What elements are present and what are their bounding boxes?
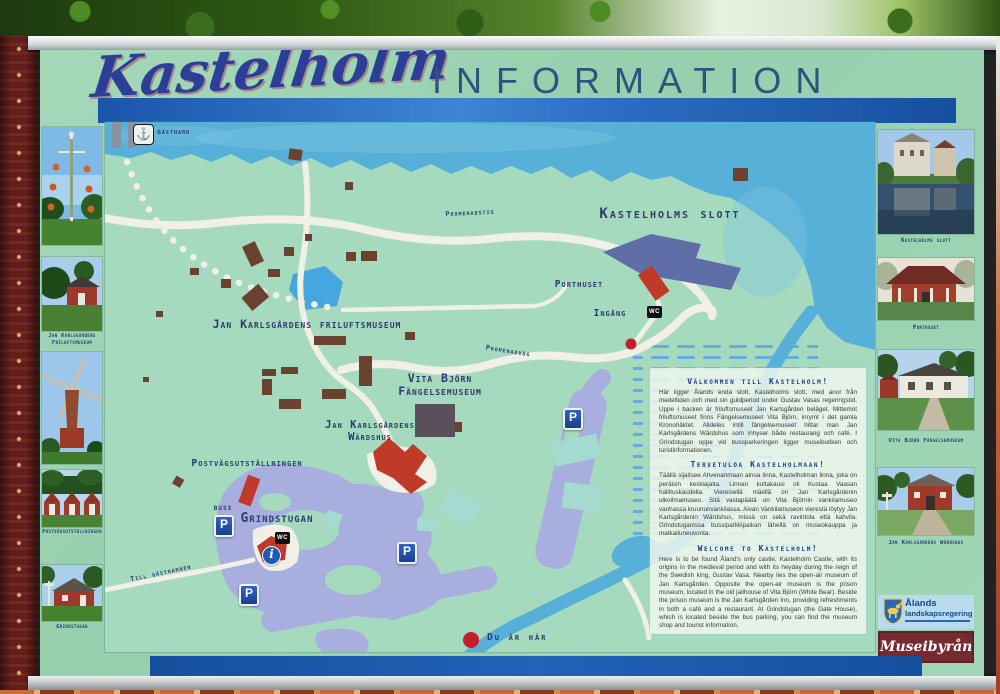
sign-frame-bottom xyxy=(28,676,996,690)
you-are-here-dot xyxy=(463,632,479,648)
logo-underline xyxy=(905,620,970,622)
caption-friluftsmuseum: Jan Karlsgårdens Friluftsmuseum xyxy=(42,333,102,347)
site-map: ⚓ Gästhamn Promenadstig Kastelholms slot… xyxy=(105,122,875,652)
label-kastelholms-slott: Kastelholms slott xyxy=(545,207,795,222)
caption-wardshus: Jan Karlsgårdens Wärdshus xyxy=(878,540,974,547)
heading-finnish: Tervetuloa Kastelholmaan! xyxy=(659,460,857,469)
aland-coat-of-arms-icon xyxy=(881,597,905,627)
label-porthuset: Porthuset xyxy=(533,280,625,290)
heading-swedish: Välkommen till Kastelholm! xyxy=(659,377,857,386)
background-right xyxy=(996,36,1000,694)
caption-grindstugan: Grindstugan xyxy=(42,624,102,631)
wc-badge-porthuset: WC xyxy=(647,306,662,318)
label-postvagsutstallningen: Postvägsutställningen xyxy=(163,458,331,469)
alands-landskapsregering-logo: Ålands landskapsregering xyxy=(878,595,974,629)
entrance-dot xyxy=(626,339,637,350)
photo-windmill xyxy=(42,352,102,464)
label-gasthamn: Gästhamn xyxy=(157,129,190,136)
caption-vita-bjorn: Vita Björn Fängelsemuseum xyxy=(878,438,974,445)
logo-text-landskapsregering: landskapsregering xyxy=(905,609,973,618)
paragraph-swedish: Här ligger Ålands enda slott, Kastelholm… xyxy=(659,389,857,455)
logo-text-museibyran: Museibyrån xyxy=(880,639,972,655)
label-wardshus-line2: Wärdshus xyxy=(308,432,432,444)
caption-porthuset: Porthuset xyxy=(878,325,974,333)
label-friluftsmuseum: Jan Karlsgårdens friluftsmuseum xyxy=(185,318,429,331)
paragraph-english: Here is to be found Åland's only castle,… xyxy=(659,556,857,631)
label-vita-bjorn: Vita Björn Fängelsemuseum xyxy=(373,372,507,397)
caption-postvagsutstallningen: Postvägsutställningen xyxy=(42,529,102,536)
tree-foliage xyxy=(0,0,1000,38)
label-ingang: Ingång xyxy=(575,309,645,319)
paragraph-finnish: Täällä sijaitsee Ahvenanmaan ainoa linna… xyxy=(659,472,857,538)
information-board: Kastelholm INFORMATION xyxy=(40,50,984,676)
anchor-icon: ⚓ xyxy=(133,124,154,145)
label-grindstugan: Grindstugan xyxy=(208,512,346,526)
bottom-divider-bar xyxy=(150,656,922,676)
welcome-text-panel: Välkommen till Kastelholm! Här ligger Ål… xyxy=(650,368,866,634)
label-wardshus: Jan Karlsgårdens Wärdshus xyxy=(308,420,432,443)
photo-maypole xyxy=(42,127,102,245)
photo-porthuset xyxy=(878,258,974,320)
photo-kastelholms-slott xyxy=(878,130,974,234)
wooden-frame-post xyxy=(0,36,38,694)
parking-icon-middle: P xyxy=(397,542,417,564)
heading-english: Welcome to Kastelholm! xyxy=(659,544,857,553)
photo-grindstugan xyxy=(42,565,102,621)
label-wardshus-line1: Jan Karlsgårdens xyxy=(308,420,432,432)
header-divider-bar xyxy=(98,98,956,123)
fence xyxy=(0,690,1000,694)
parking-icon-southwest: P xyxy=(239,584,259,606)
label-vita-bjorn-line1: Vita Björn xyxy=(373,372,507,385)
caption-kastelholms-slott: Kastelholms slott xyxy=(878,238,974,246)
sign-frame-top xyxy=(28,36,996,50)
photo-postvagsutstallningen xyxy=(42,470,102,527)
photo-wardshus xyxy=(878,468,974,535)
wc-badge-grindstugan: WC xyxy=(275,532,290,544)
parking-icon-east: P xyxy=(563,408,583,430)
tourist-info-icon: i xyxy=(262,546,281,565)
label-vita-bjorn-line2: Fängelsemuseum xyxy=(373,385,507,398)
label-du-ar-har: Du är här xyxy=(487,633,547,643)
logo-text-alands: Ålands xyxy=(905,598,937,609)
photo-friluftsmuseum xyxy=(42,257,102,331)
board-title-information: INFORMATION xyxy=(432,60,835,102)
photo-vita-bjorn xyxy=(878,350,974,430)
